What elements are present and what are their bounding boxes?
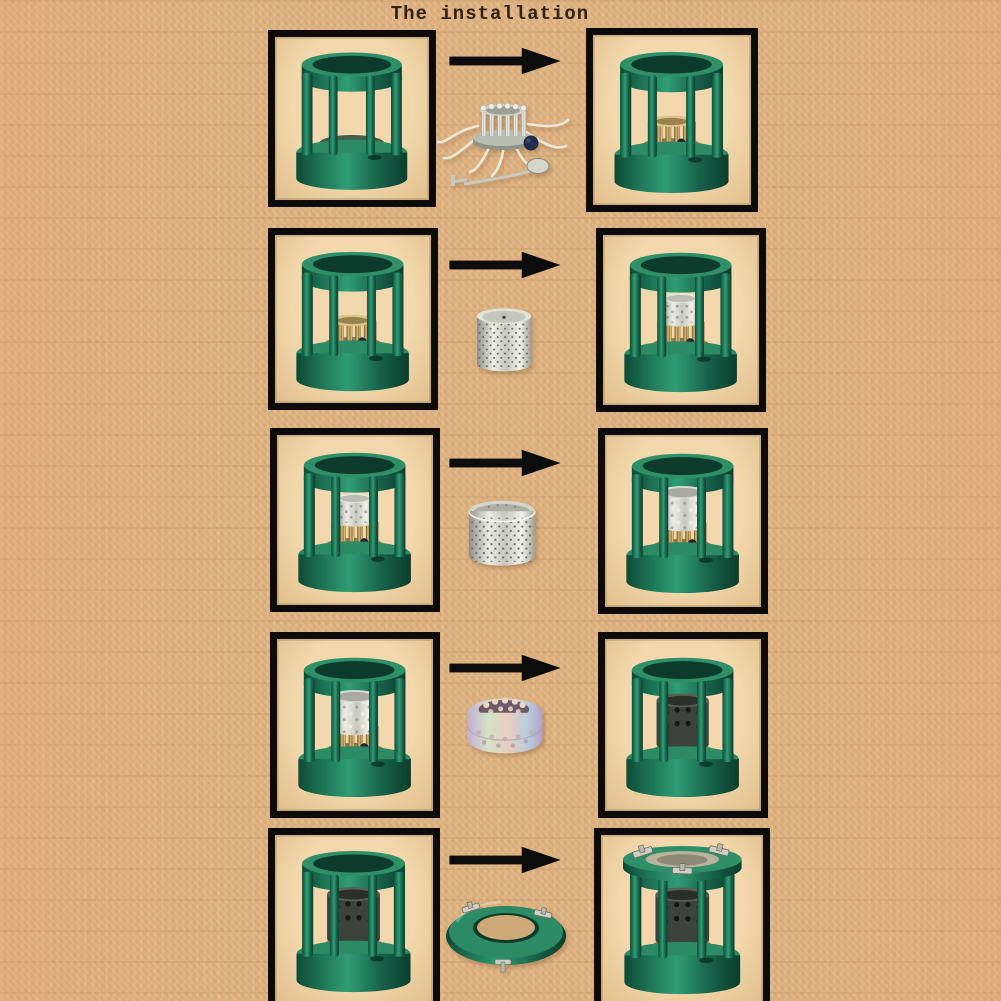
stove-with-flame-ring-icon [614, 645, 751, 805]
stove-with-burner-icon [284, 241, 421, 397]
step-2-before-photo [268, 228, 438, 410]
step-4-part-photo [450, 678, 560, 776]
wick-burner-icon [434, 86, 574, 198]
arrow-right-icon [443, 250, 567, 280]
step-3-after-photo [598, 428, 768, 614]
installation-diagram: The installation [0, 0, 1001, 1001]
step-1-part-photo [434, 86, 574, 198]
stove-with-sleeve-icon [612, 241, 749, 399]
step-1-before-photo [268, 30, 436, 207]
step-1-after-photo [586, 28, 758, 212]
arrow-right-icon [443, 46, 567, 76]
step-3-before-photo [270, 428, 440, 612]
perforated-cylinder-icon [444, 476, 560, 586]
step-5-before-photo [268, 828, 440, 1001]
arrow-right-icon [443, 448, 567, 478]
empty-stove-frame-icon [284, 43, 420, 195]
flame-spreader-ring-icon [450, 678, 560, 776]
step-2-after-photo [596, 228, 766, 412]
page-title: The installation [0, 3, 980, 25]
assembled-stove-icon [611, 841, 754, 999]
step-5-part-photo [430, 886, 582, 978]
step-3-part-photo [444, 476, 560, 586]
stove-with-sleeve-icon [286, 441, 423, 599]
stove-with-chimney-icon [286, 645, 423, 805]
step-4-after-photo [598, 632, 768, 818]
step-5-after-photo [594, 828, 770, 1001]
step-4-before-photo [270, 632, 440, 818]
stove-with-burner-icon [602, 41, 741, 199]
stove-with-flame-ring-icon [284, 841, 423, 997]
perforated-cup-icon [452, 284, 556, 390]
arrow-right-icon [443, 845, 567, 875]
step-2-part-photo [452, 284, 556, 390]
stove-with-chimney-icon [614, 441, 751, 601]
top-ring-pot-support-icon [430, 886, 582, 978]
